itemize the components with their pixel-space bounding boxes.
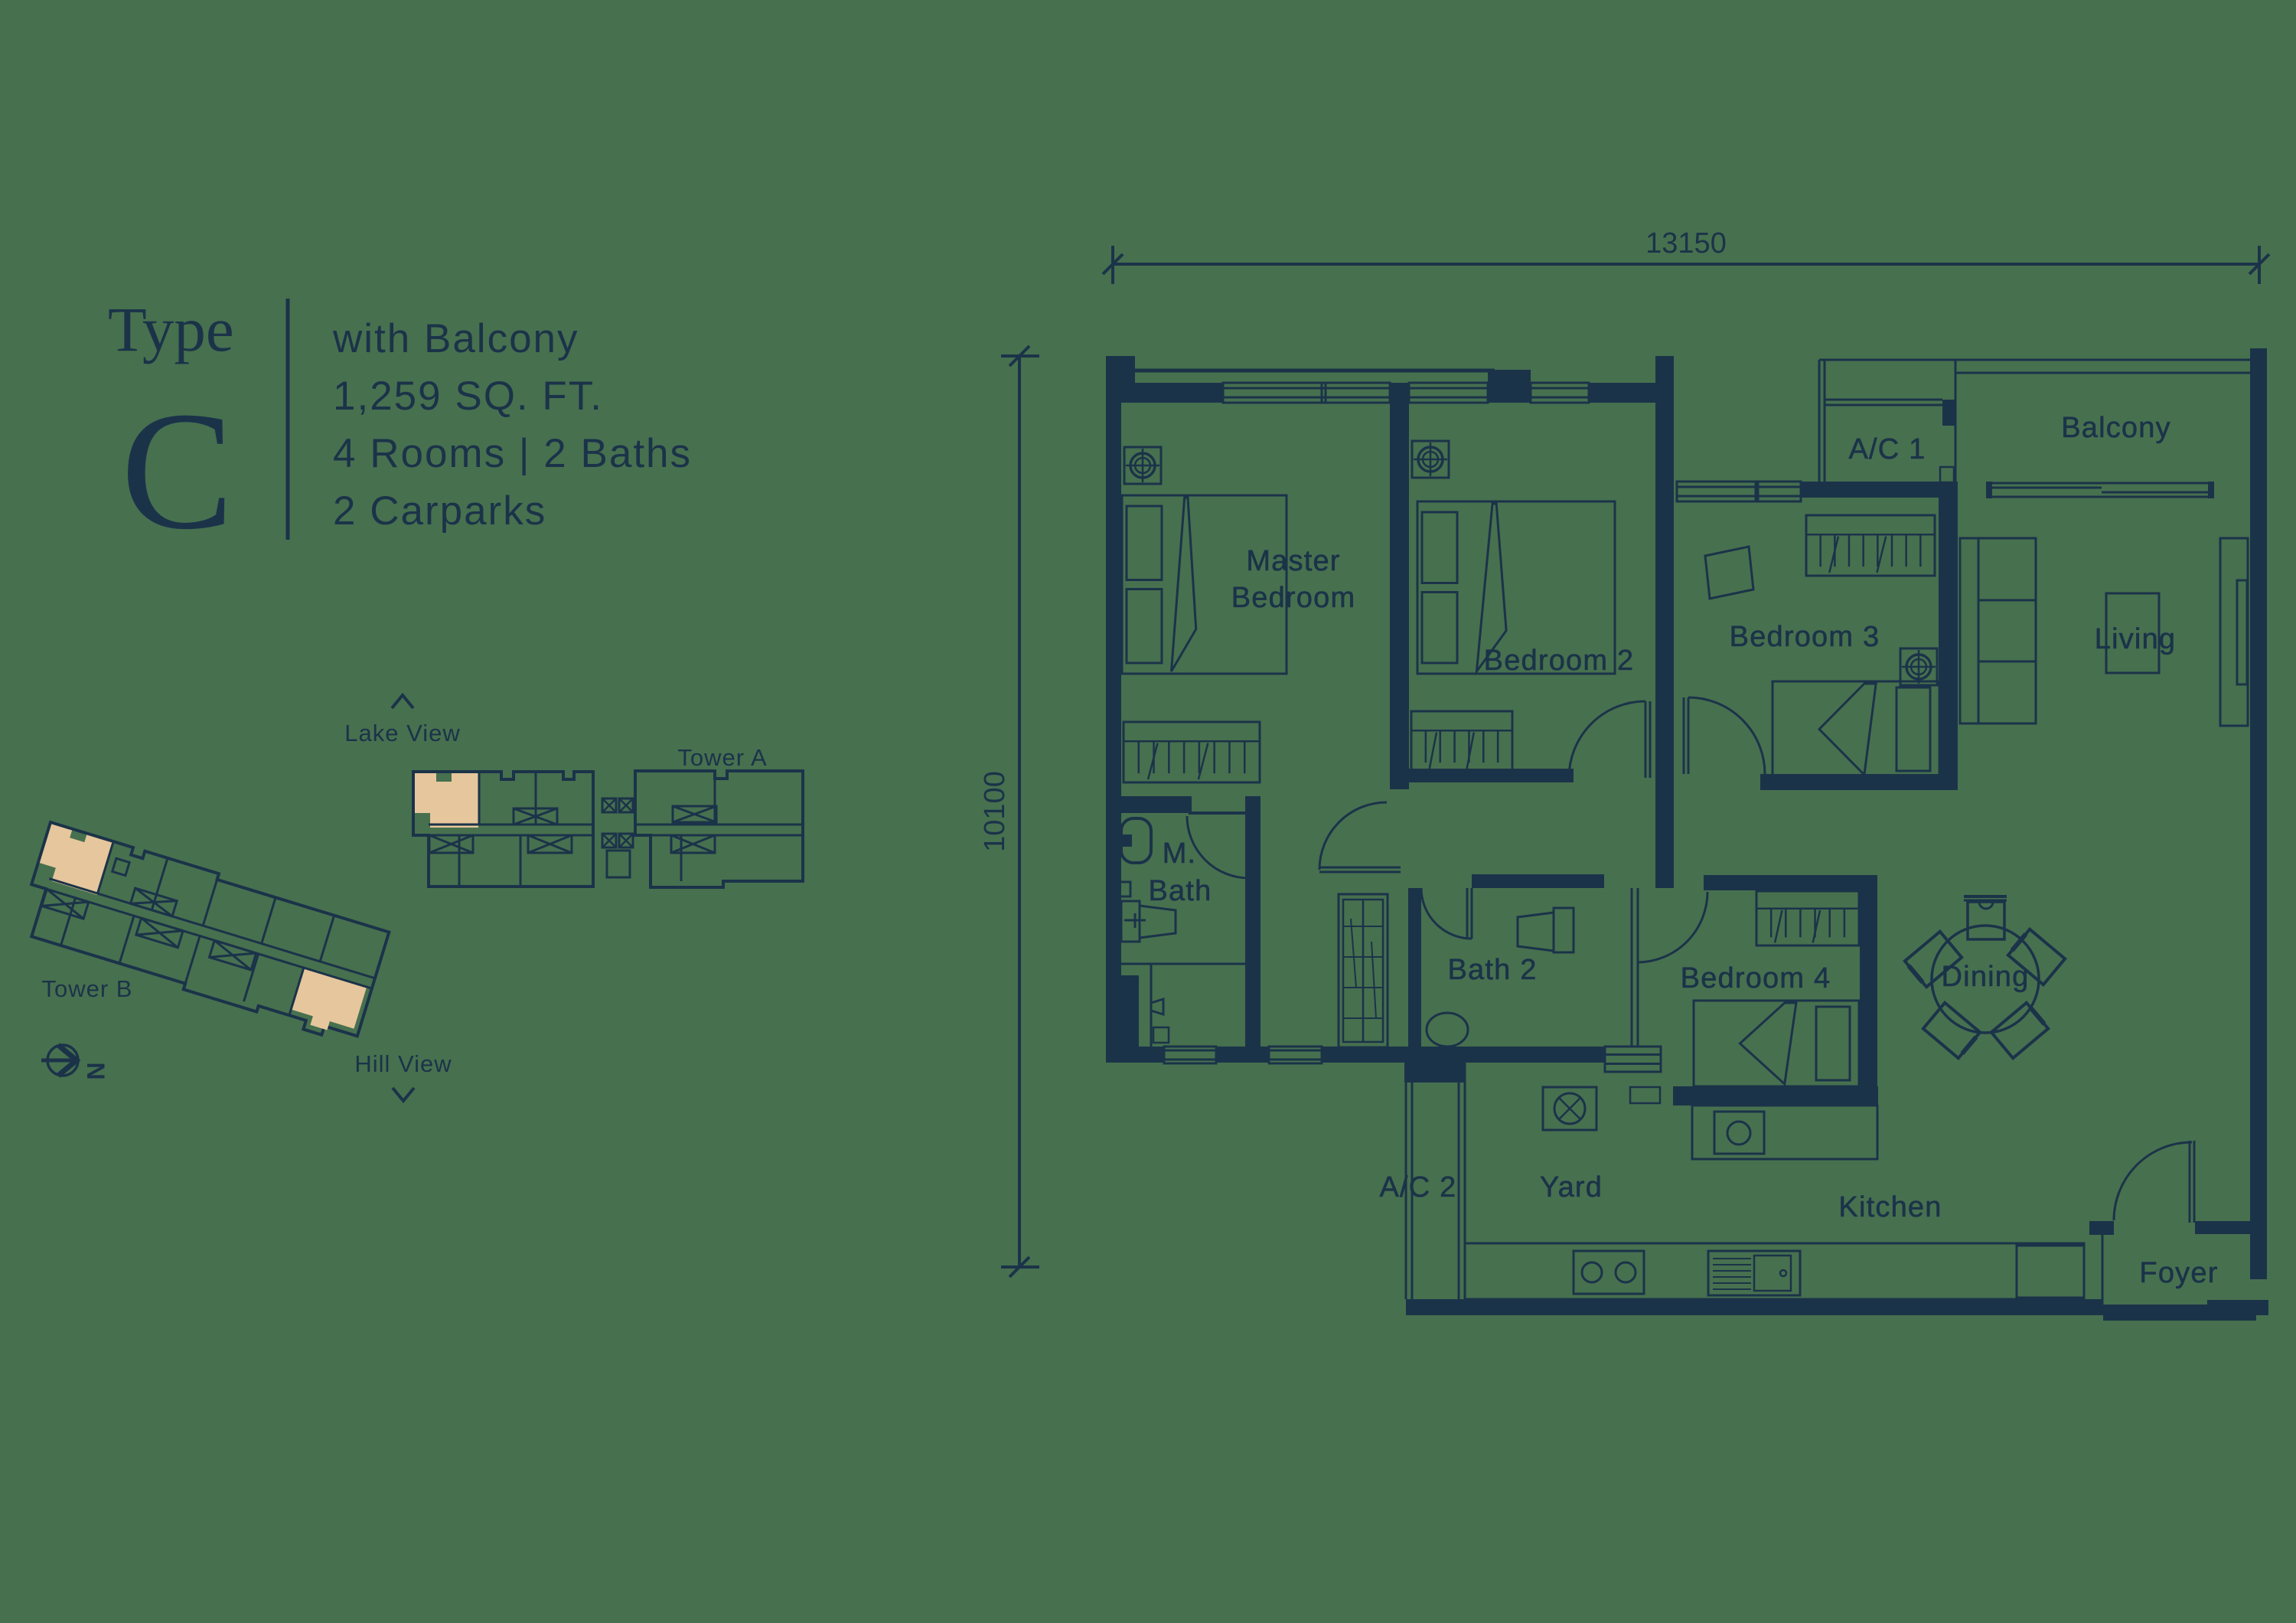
svg-text:Bedroom 3: Bedroom 3 [1730,621,1880,653]
svg-text:1,259 SQ. FT.: 1,259 SQ. FT. [333,374,603,419]
svg-text:Yard: Yard [1540,1171,1603,1203]
svg-text:Tower B: Tower B [42,975,133,1002]
svg-text:4 Rooms | 2 Baths: 4 Rooms | 2 Baths [333,431,692,476]
svg-text:Kitchen: Kitchen [1838,1191,1942,1223]
svg-text:2 Carparks: 2 Carparks [333,488,546,534]
svg-text:Living: Living [2095,623,2177,655]
svg-text:Foyer: Foyer [2139,1257,2218,1289]
svg-text:Bath 2: Bath 2 [1447,954,1537,986]
svg-text:Bedroom 4: Bedroom 4 [1681,962,1831,994]
svg-text:Bedroom 2: Bedroom 2 [1484,645,1635,677]
svg-text:Dining: Dining [1942,961,2030,993]
svg-text:with Balcony: with Balcony [332,316,579,361]
svg-text:A/C 1: A/C 1 [1848,433,1926,465]
svg-text:N: N [82,1062,109,1079]
svg-text:Tower A: Tower A [677,744,767,771]
svg-text:10100: 10100 [979,771,1011,852]
svg-text:Master: Master [1246,545,1340,577]
svg-text:C: C [121,377,233,564]
svg-text:A/C 2: A/C 2 [1379,1171,1456,1203]
svg-text:13150: 13150 [1645,227,1727,260]
svg-text:Type: Type [108,294,234,364]
svg-text:Bedroom: Bedroom [1231,582,1356,614]
svg-text:Bath: Bath [1149,875,1212,907]
svg-text:Lake View: Lake View [344,720,460,746]
svg-text:Balcony: Balcony [2061,412,2171,444]
svg-text:M.: M. [1163,838,1197,870]
svg-text:Hill View: Hill View [354,1050,452,1077]
